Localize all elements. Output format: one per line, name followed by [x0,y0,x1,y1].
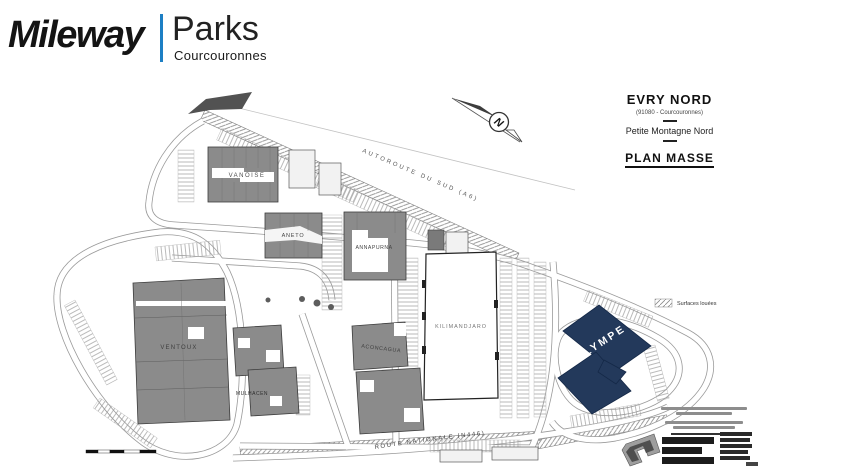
brand-divider [160,14,163,62]
scale-bar [86,450,156,453]
company-small-mark [746,462,758,466]
company-name-block [662,437,714,464]
company-name-line [662,457,714,464]
brand-logo-text: Mileway [8,14,143,57]
label-annapurna: ANNAPURNA [355,245,392,251]
brand-header: Mileway Parks Courcouronnes [8,8,308,70]
compass-north-icon: N [452,98,522,142]
plan-type: PLAN MASSE [625,151,714,168]
title-divider-1 [663,120,677,122]
building-kilimandjaro: KILIMANDJARO [422,252,499,400]
small-dark-roof [428,230,444,250]
label-aneto: ANETO [282,233,305,239]
company-address-block [720,432,752,460]
company-logo [622,434,660,466]
zone-name: Petite Montagne Nord [612,126,727,136]
credit-line [665,421,743,424]
legend-label: Surfaces louées [677,301,717,307]
credit-line [661,407,747,410]
company-name-line [662,447,702,454]
building-ventoux: VENTOUX [133,278,230,424]
credit-line [676,412,732,415]
credits-fine-print [656,407,752,435]
title-divider-2 [663,140,677,142]
pond-shape [188,92,252,114]
company-name-line [662,437,714,444]
brand-location-text: Courcouronnes [174,48,267,63]
site-plan-map: VANOISE ANETO ANNAPURNA KILIMANDJARO [0,0,850,471]
plan-masse-page: VANOISE ANETO ANNAPURNA KILIMANDJARO [0,0,850,471]
building-vanoise: VANOISE [208,147,278,202]
building-annapurna: ANNAPURNA [344,212,406,280]
title-block: EVRY NORD (91080 - Courcouronnes) Petite… [612,92,727,168]
credit-line [673,426,735,429]
company-address-line [720,444,752,448]
brand-product-text: Parks [172,10,259,49]
legend-leased-surfaces: Surfaces louées [655,299,717,307]
label-ventoux: VENTOUX [160,345,197,351]
label-mulhacen: MULHACEN [236,391,268,397]
company-address-line [720,450,748,454]
site-name: EVRY NORD [612,92,727,107]
building-aneto: ANETO [265,213,322,258]
site-code: (91080 - Courcouronnes) [612,110,727,116]
company-address-line [720,456,750,460]
label-vanoise: VANOISE [229,173,266,179]
company-address-line [720,432,752,436]
company-address-line [720,438,750,442]
label-kilimandjaro: KILIMANDJARO [435,324,487,330]
legend-hatch-swatch [655,299,672,307]
